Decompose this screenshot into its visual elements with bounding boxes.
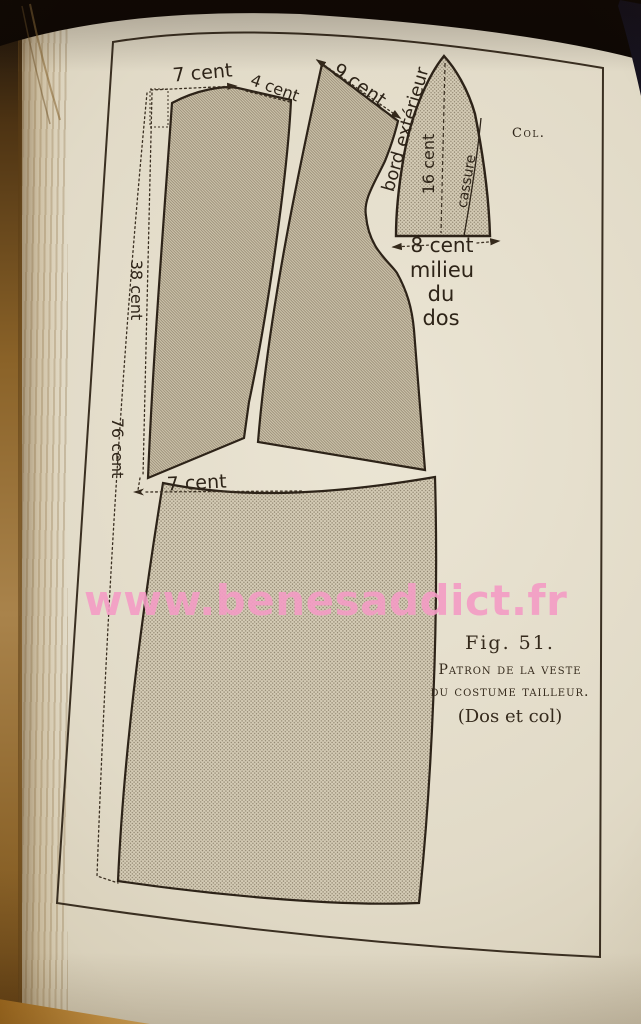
label-center-back-1: milieu — [410, 258, 474, 282]
caption-line-1: Patron de la veste — [410, 659, 610, 681]
figure-number: Fig. 51. — [410, 632, 610, 654]
seam-allowance-dashed-box — [150, 89, 168, 127]
label-upper-back-length: 38 cent — [127, 260, 146, 321]
label-center-back-2: du — [428, 282, 455, 306]
label-collar-base-width: 8 cent — [411, 233, 474, 257]
pattern-diagram: 7 cent 4 cent 9 cent bord extérieur 16 c… — [0, 0, 641, 1024]
label-top-width: 7 cent — [172, 59, 233, 86]
caption-line-3: (Dos et col) — [410, 706, 610, 727]
label-collar-length: 16 cent — [419, 134, 438, 195]
label-total-length: 76 cent — [108, 418, 127, 479]
label-center-back-3: dos — [422, 306, 459, 330]
photo-top-shadow — [0, 0, 641, 60]
pattern-piece-lower-back — [118, 477, 436, 904]
watermark-text: www.benesaddict.fr — [84, 576, 567, 625]
label-lower-offset: 7 cent — [166, 470, 227, 495]
label-collar-abbrev: Col. — [512, 126, 545, 141]
book-photo: 7 cent 4 cent 9 cent bord extérieur 16 c… — [0, 0, 641, 1024]
figure-caption: Fig. 51. Patron de la veste du costume t… — [410, 632, 610, 727]
collar-width-dashed-line-right — [477, 241, 499, 243]
caption-line-2: du costume tailleur. — [410, 681, 610, 703]
